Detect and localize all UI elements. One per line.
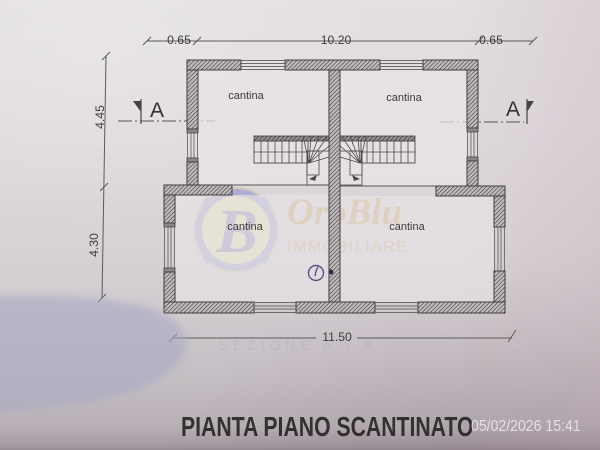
- svg-text:4.30: 4.30: [87, 233, 101, 257]
- svg-text:cantina: cantina: [227, 221, 263, 233]
- svg-text:cantina: cantina: [228, 90, 264, 102]
- svg-text:11.50: 11.50: [322, 330, 352, 344]
- svg-text:4.45: 4.45: [93, 105, 107, 129]
- svg-text:SEZIONE A - A: SEZIONE A - A: [218, 337, 377, 353]
- svg-text:A: A: [506, 98, 520, 121]
- svg-text:cantina: cantina: [389, 221, 425, 233]
- svg-text:10.20: 10.20: [321, 33, 352, 47]
- svg-text:0.65: 0.65: [167, 33, 191, 47]
- svg-text:cantina: cantina: [386, 92, 422, 104]
- svg-text:A: A: [150, 99, 164, 122]
- svg-text:0.65: 0.65: [479, 33, 503, 47]
